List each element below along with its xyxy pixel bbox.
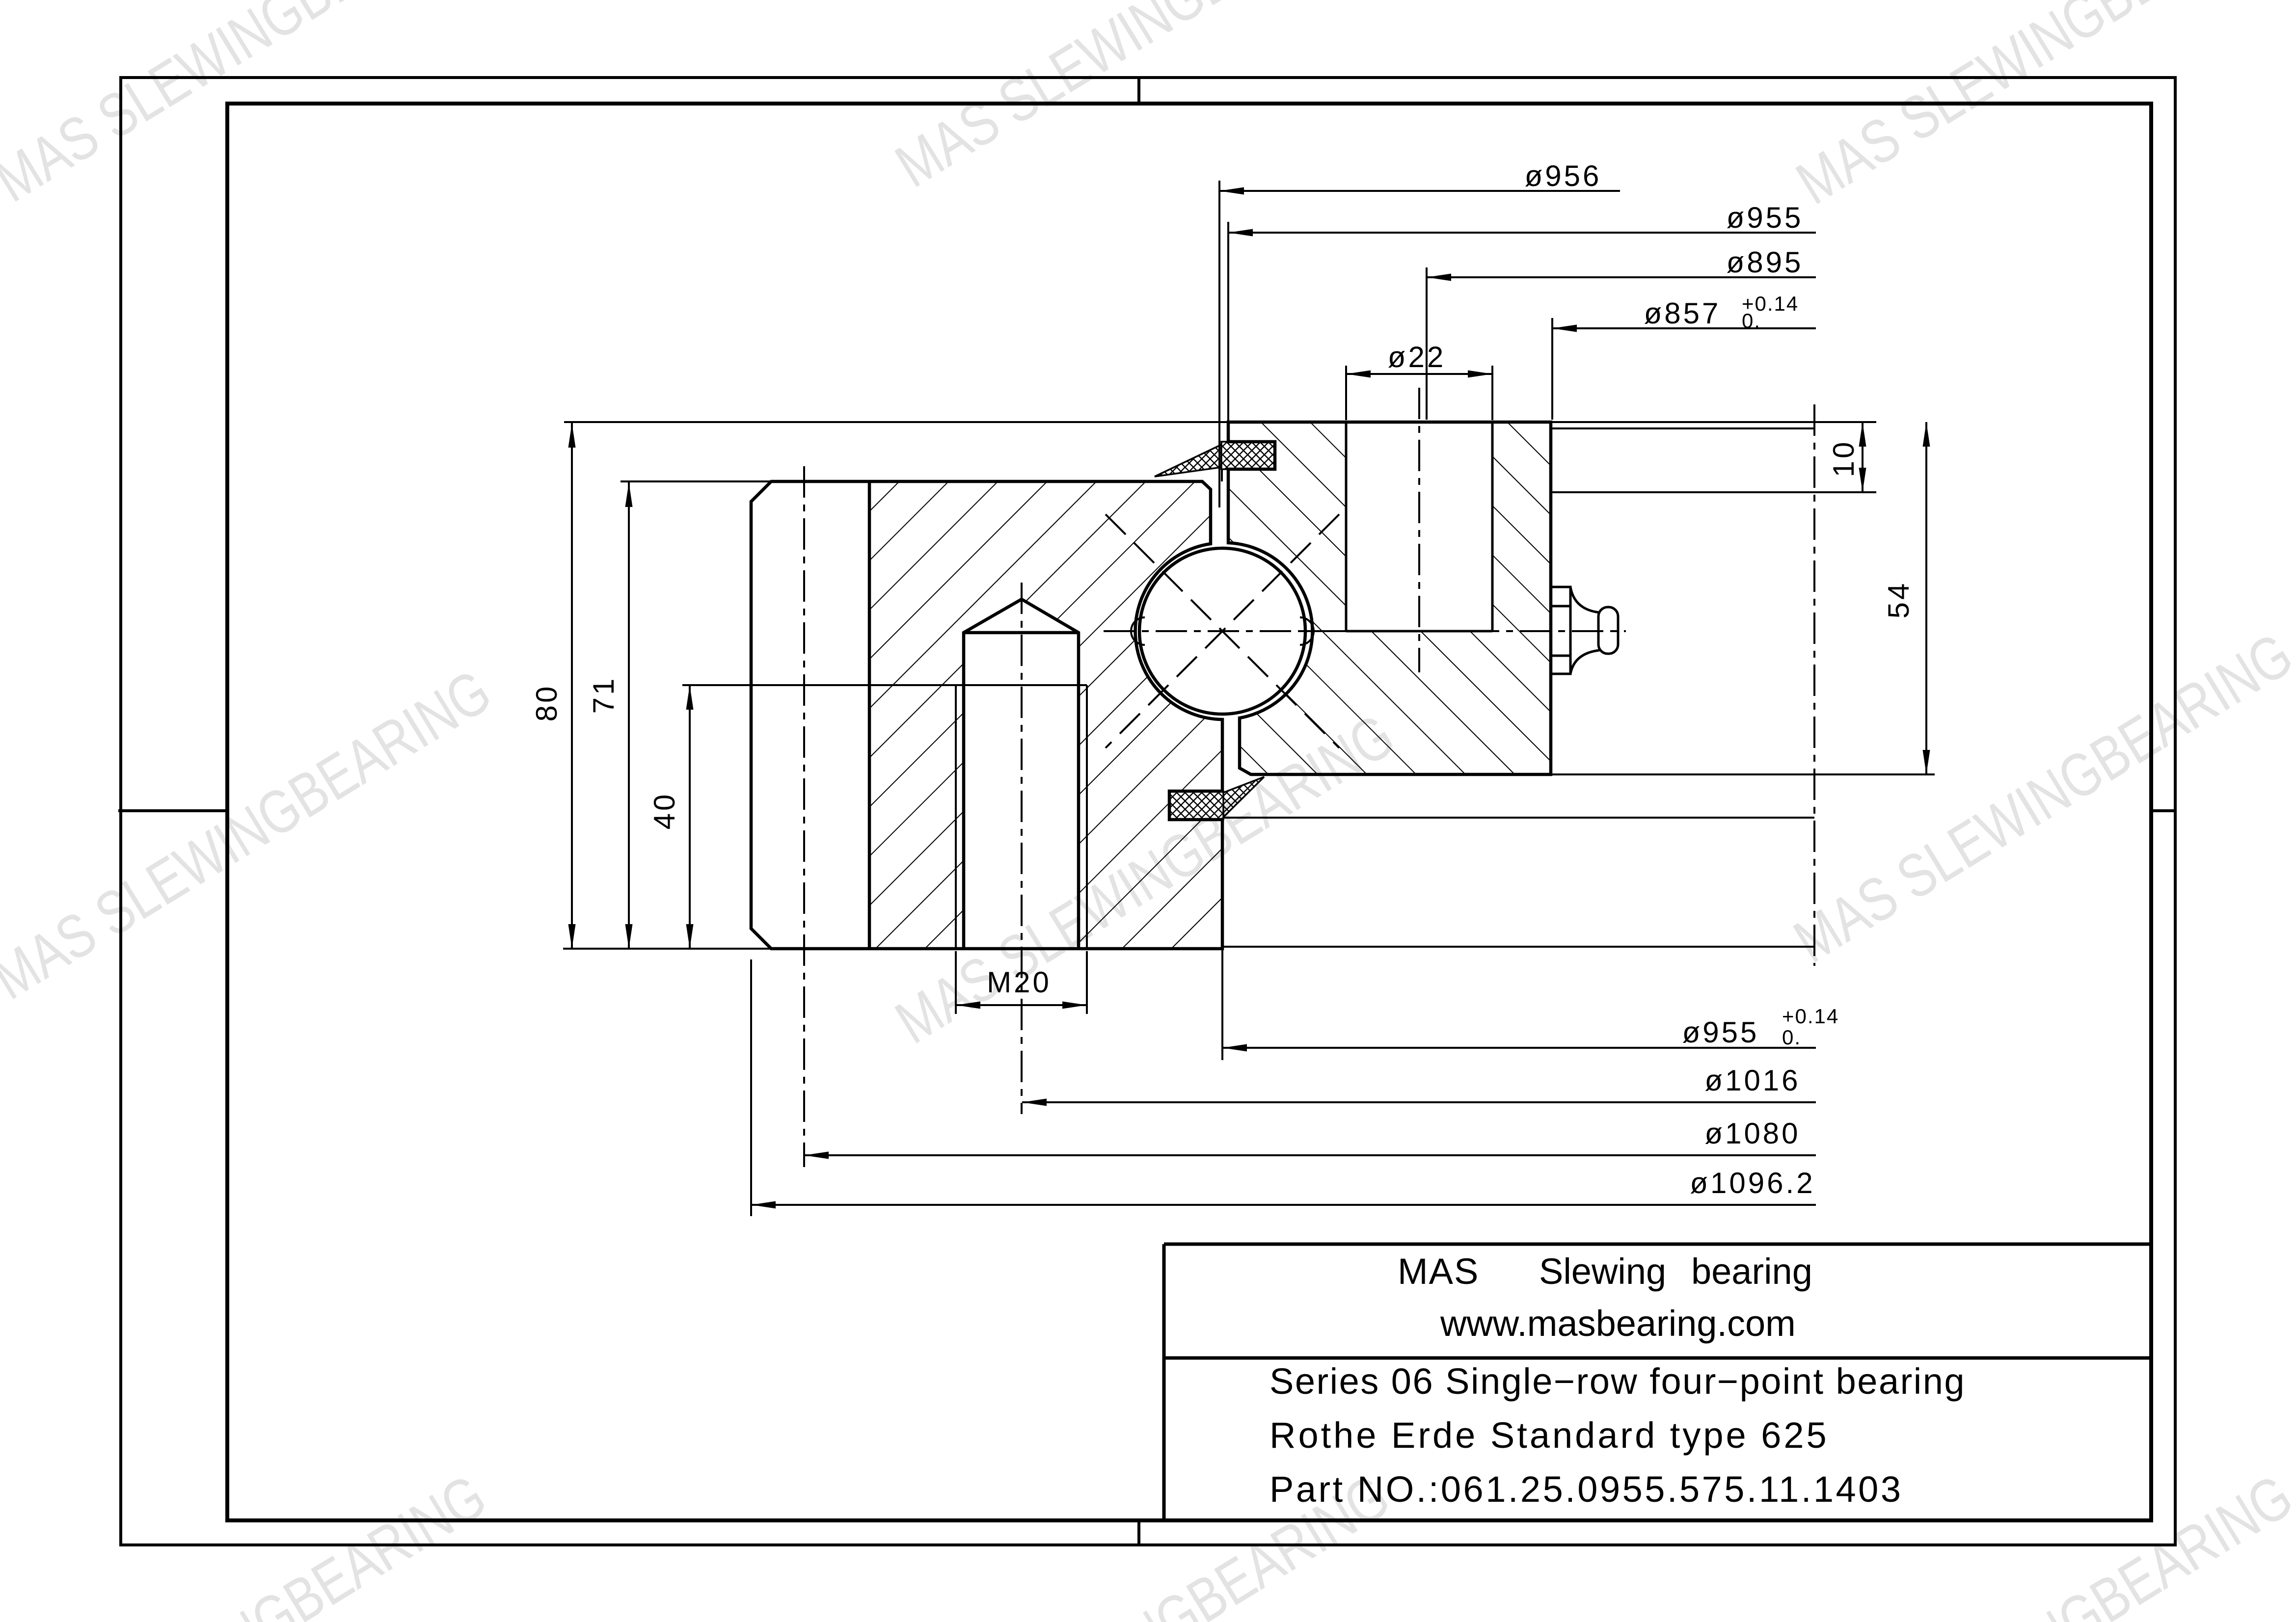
svg-text:Series 06 Single−row four−poin: Series 06 Single−row four−point bearing <box>1270 1361 1966 1402</box>
svg-text:ø857: ø857 <box>1644 297 1721 330</box>
svg-text:0.: 0. <box>1782 1026 1801 1049</box>
svg-text:ø1016: ø1016 <box>1704 1064 1800 1097</box>
svg-text:Part NO.:061.25.0955.575.11.14: Part NO.:061.25.0955.575.11.1403 <box>1270 1469 1903 1510</box>
svg-text:MAS: MAS <box>1398 1251 1479 1292</box>
svg-text:71: 71 <box>587 676 620 714</box>
svg-text:ø955: ø955 <box>1727 201 1804 234</box>
svg-text:ø955: ø955 <box>1682 1016 1759 1049</box>
svg-text:ø1080: ø1080 <box>1704 1117 1800 1150</box>
svg-text:www.masbearing.com: www.masbearing.com <box>1440 1303 1796 1344</box>
svg-text:80: 80 <box>530 684 563 722</box>
svg-text:10: 10 <box>1827 440 1860 478</box>
svg-text:40: 40 <box>648 792 681 830</box>
svg-text:ø895: ø895 <box>1727 246 1804 279</box>
svg-text:ø22: ø22 <box>1388 341 1446 373</box>
svg-text:M20: M20 <box>987 966 1052 999</box>
svg-text:bearing: bearing <box>1691 1251 1812 1292</box>
svg-text:ø956: ø956 <box>1525 160 1602 192</box>
svg-text:+0.14: +0.14 <box>1782 1005 1839 1028</box>
svg-text:54: 54 <box>1882 581 1915 619</box>
svg-text:0.: 0. <box>1742 309 1761 332</box>
svg-text:Slewing: Slewing <box>1539 1251 1666 1292</box>
svg-text:ø1096.2: ø1096.2 <box>1690 1167 1815 1199</box>
svg-text:Rothe Erde Standard type 625: Rothe Erde Standard type 625 <box>1270 1415 1829 1456</box>
